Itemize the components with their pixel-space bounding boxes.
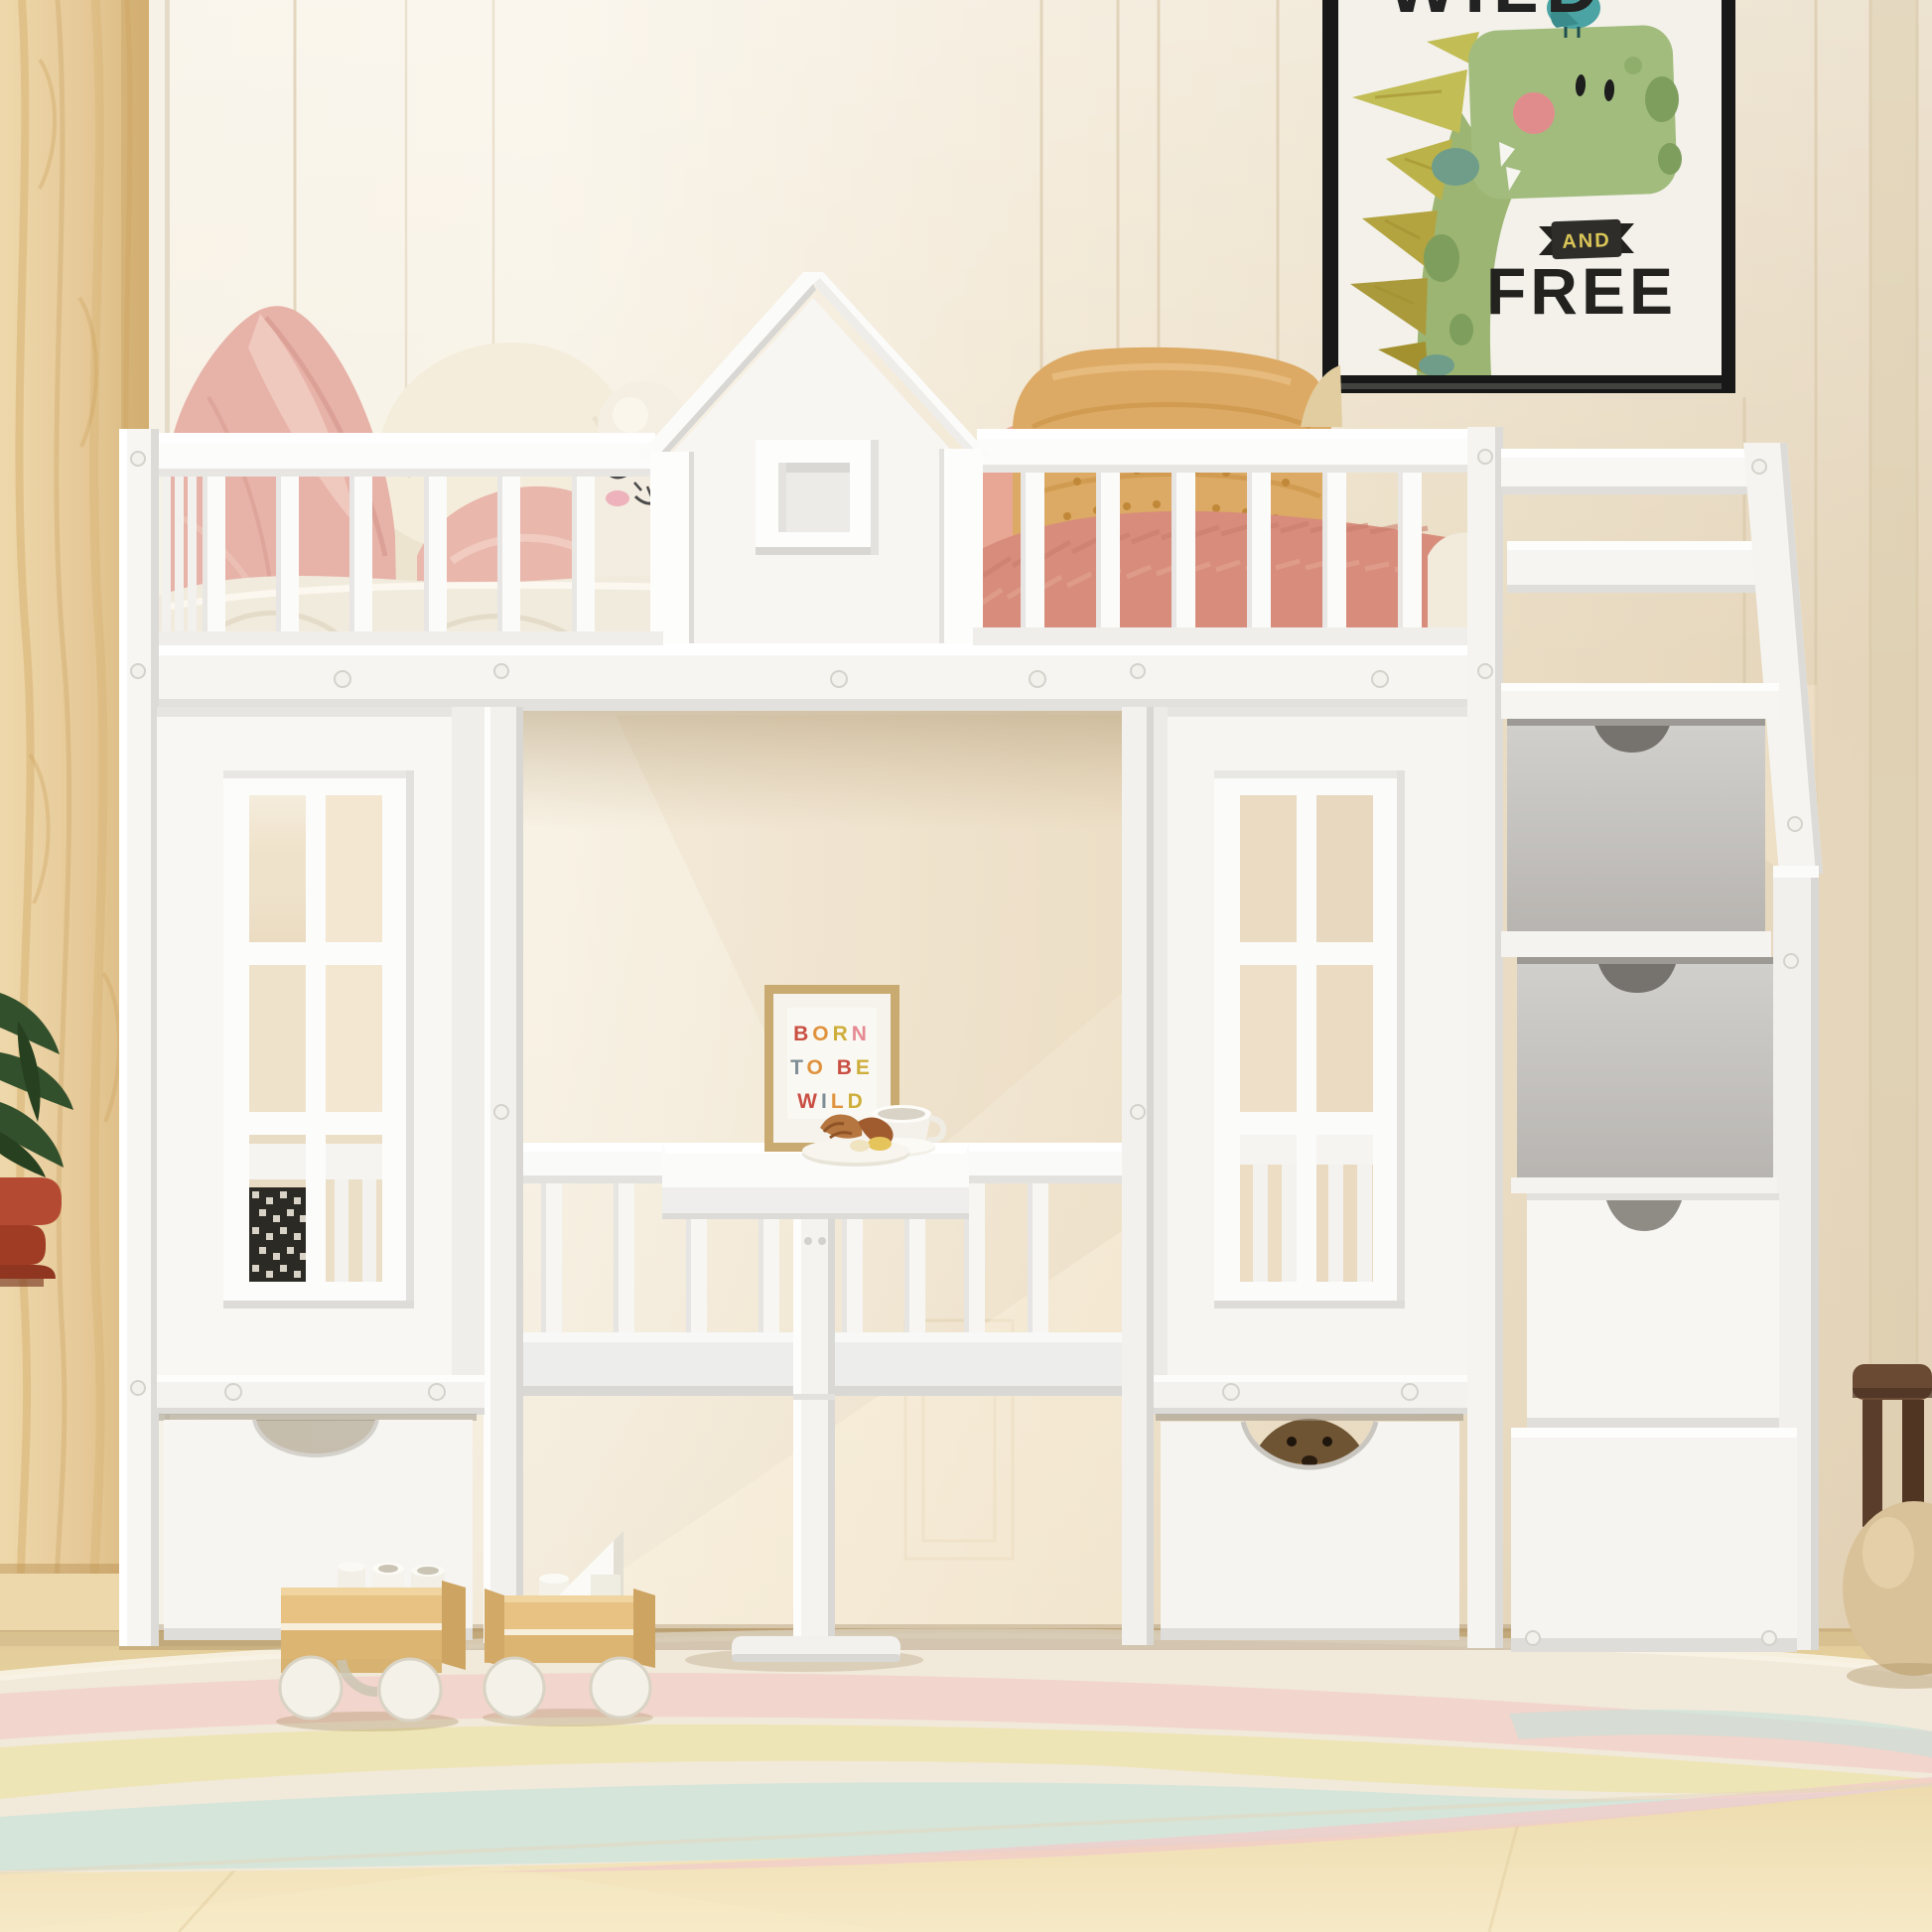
svg-text:TO BE: TO BE: [790, 1056, 874, 1079]
svg-text:AND: AND: [1562, 229, 1611, 253]
svg-text:WILD: WILD: [797, 1090, 867, 1113]
svg-text:WILD: WILD: [1387, 0, 1606, 28]
svg-text:BORN: BORN: [793, 1023, 871, 1045]
svg-text:FREE: FREE: [1486, 254, 1677, 328]
